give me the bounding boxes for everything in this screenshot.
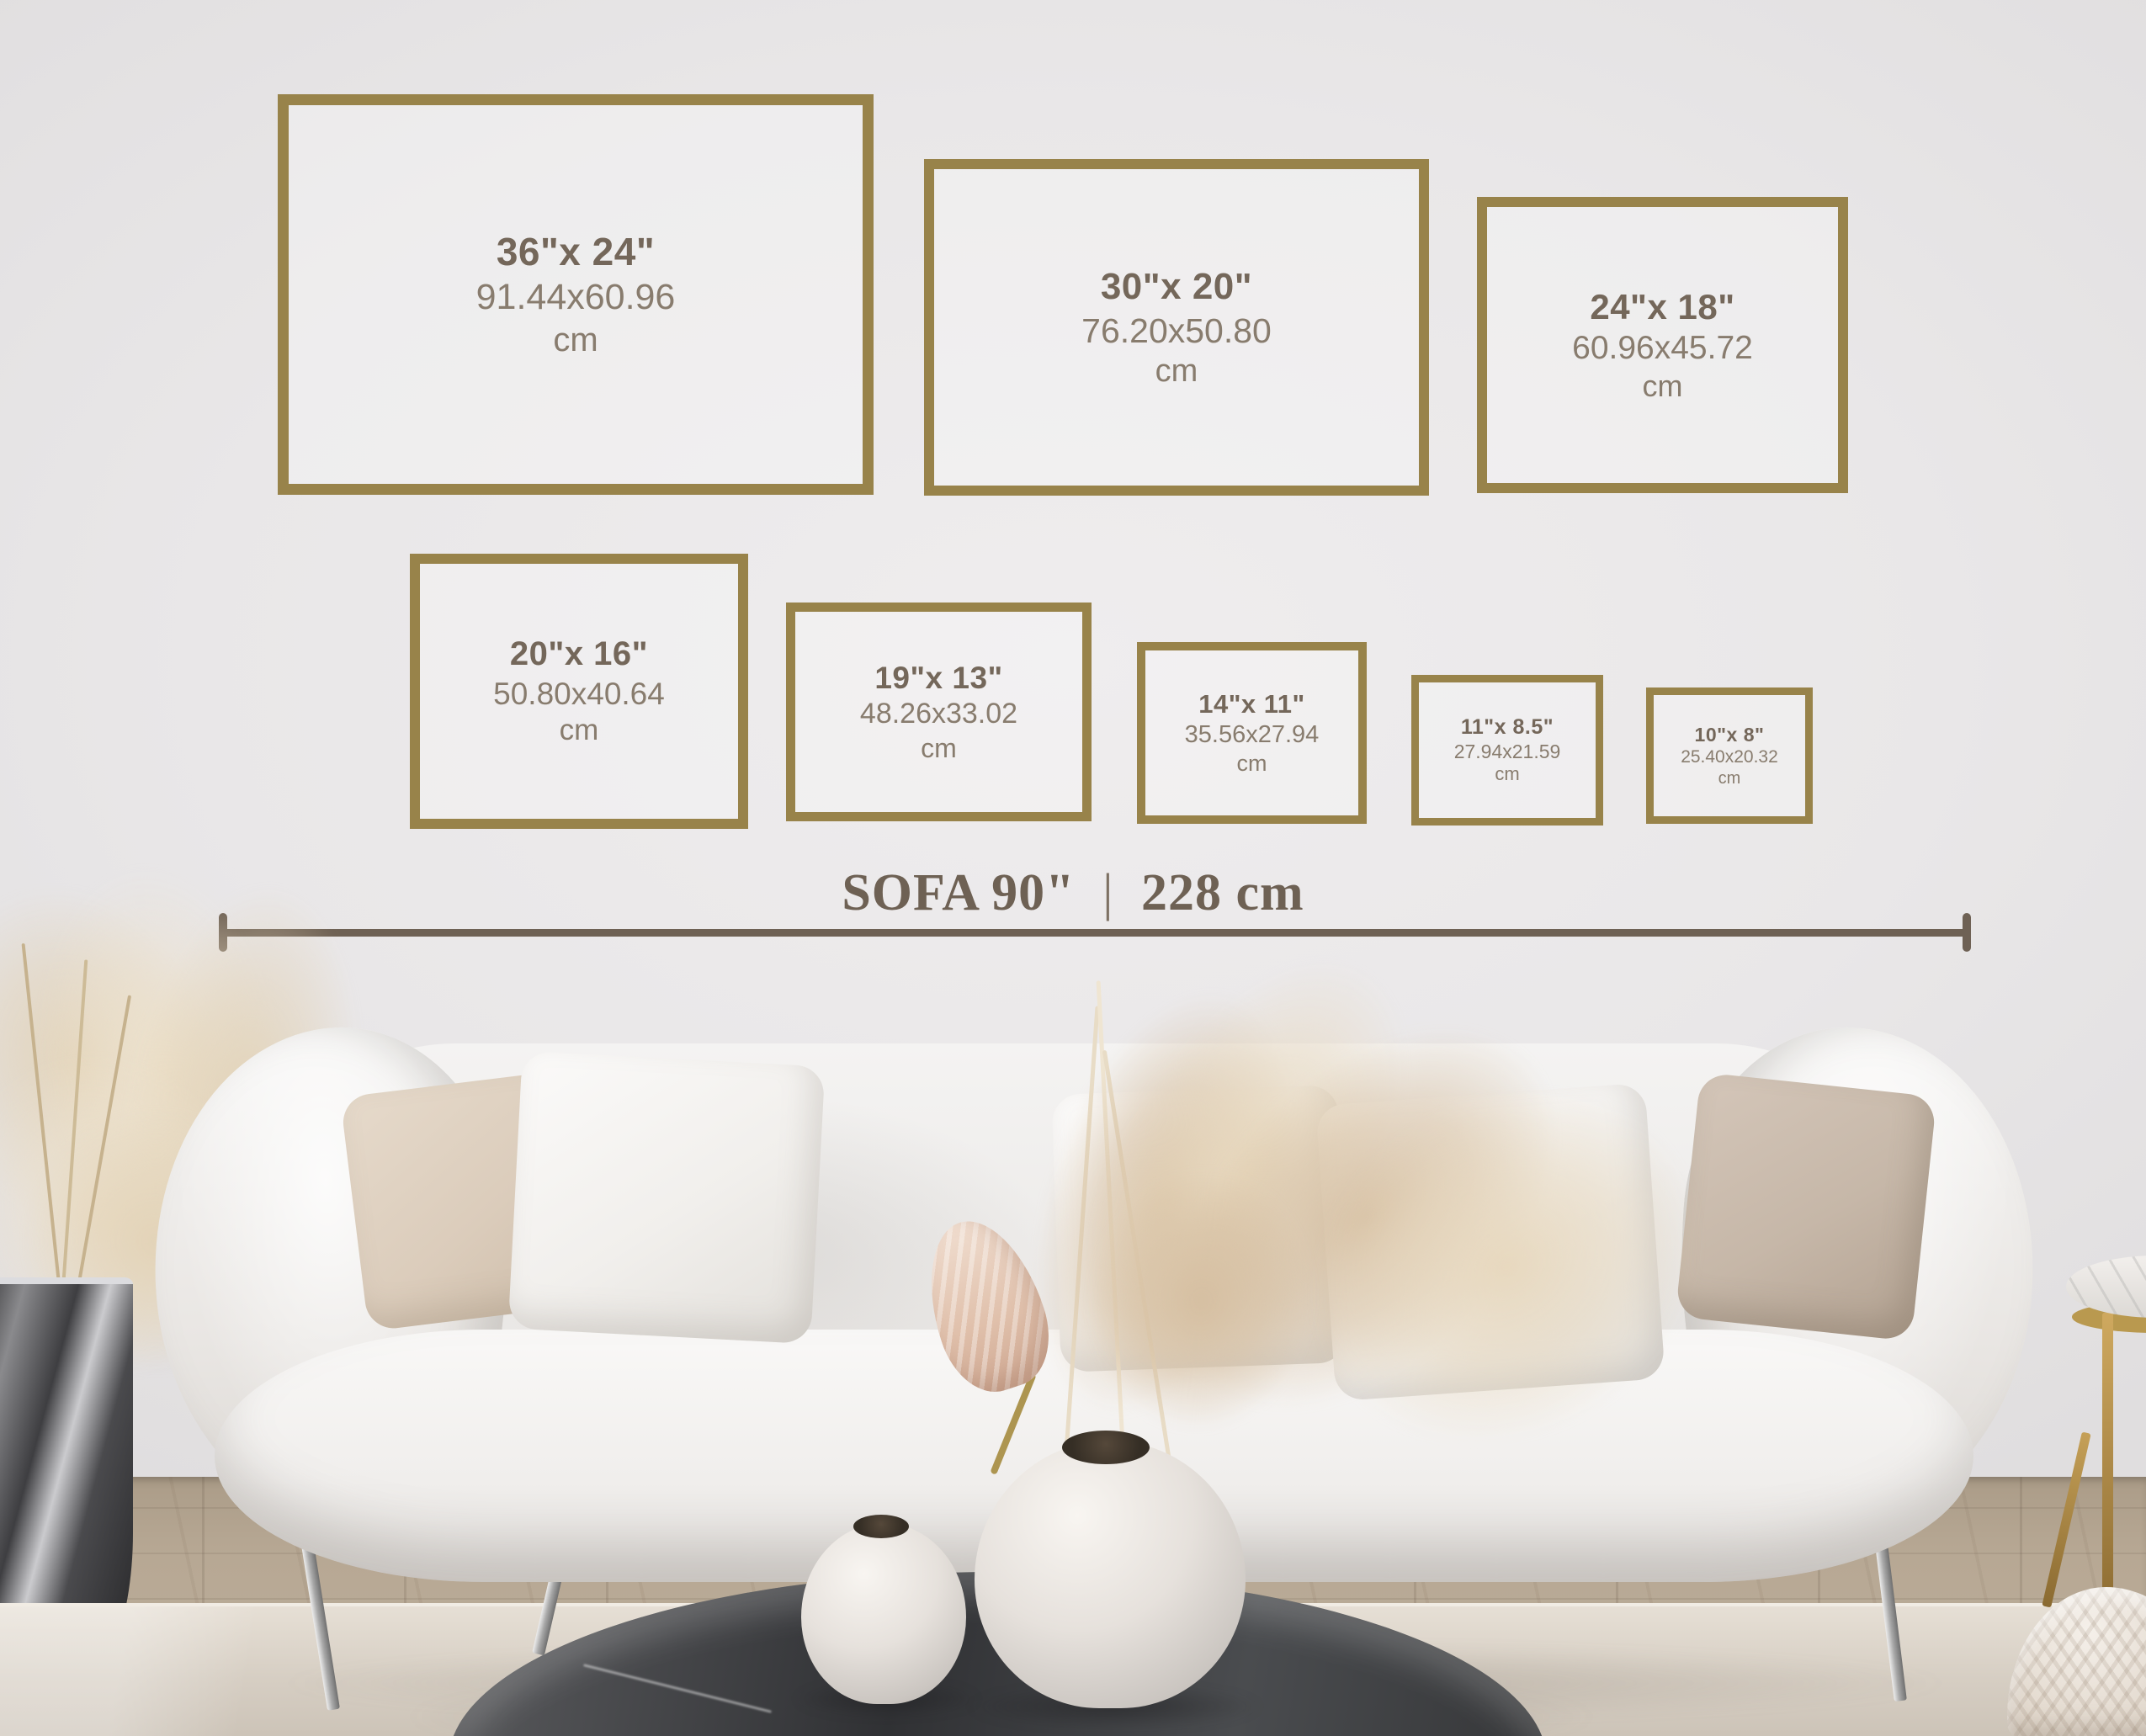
size-inches: 19"x 13" <box>860 659 1017 697</box>
size-cm: 48.26x33.02 <box>860 697 1017 731</box>
size-inches: 14"x 11" <box>1185 688 1320 720</box>
size-inches: 30"x 20" <box>1081 264 1272 310</box>
ball-vase-large <box>975 1441 1246 1708</box>
measure-end-cap-right <box>1963 913 1971 952</box>
size-unit: cm <box>493 713 665 749</box>
vase-opening <box>1062 1431 1150 1464</box>
frame-size-text: 19"x 13" 48.26x33.02 cm <box>860 659 1017 765</box>
size-cm: 27.94x21.59 <box>1454 740 1561 763</box>
frame-30x20: 30"x 20" 76.20x50.80 cm <box>924 159 1429 496</box>
frame-size-text: 11"x 8.5" 27.94x21.59 cm <box>1454 714 1561 786</box>
sofa-measure-label: SOFA 90" | 228 cm <box>652 863 1494 923</box>
size-unit: cm <box>1572 368 1753 405</box>
frame-36x24: 36"x 24" 91.44x60.96 cm <box>278 94 874 495</box>
side-table-top <box>2066 1256 2146 1318</box>
frame-size-text: 24"x 18" 60.96x45.72 cm <box>1572 285 1753 406</box>
size-cm: 76.20x50.80 <box>1081 310 1272 352</box>
size-unit: cm <box>860 732 1017 765</box>
frame-14x11: 14"x 11" 35.56x27.94 cm <box>1137 642 1367 824</box>
frame-size-text: 14"x 11" 35.56x27.94 cm <box>1185 688 1320 778</box>
size-inches: 20"x 16" <box>493 634 665 675</box>
size-cm: 91.44x60.96 <box>476 275 676 319</box>
throw-pillow-white <box>508 1051 826 1344</box>
frame-size-guide-image: SOFA 90" | 228 cm 36"x 24" 91.44x60.96 c… <box>0 0 2146 1736</box>
size-cm: 60.96x45.72 <box>1572 328 1753 369</box>
frame-size-text: 30"x 20" 76.20x50.80 cm <box>1081 264 1272 390</box>
size-cm: 35.56x27.94 <box>1185 720 1320 750</box>
frame-size-text: 36"x 24" 91.44x60.96 cm <box>476 228 676 360</box>
size-inches: 36"x 24" <box>476 228 676 275</box>
frame-size-text: 20"x 16" 50.80x40.64 cm <box>493 634 665 749</box>
size-unit: cm <box>1081 352 1272 390</box>
frame-24x18: 24"x 18" 60.96x45.72 cm <box>1477 197 1848 493</box>
size-unit: cm <box>1454 763 1561 786</box>
ball-vase-small <box>801 1523 966 1704</box>
throw-pillow-taupe <box>1676 1072 1937 1341</box>
sofa-measure-separator: | <box>1089 864 1127 921</box>
size-unit: cm <box>1681 768 1778 788</box>
sofa-measure-inches: SOFA 90" <box>842 864 1075 921</box>
sofa-measure-line <box>220 929 1969 937</box>
size-inches: 11"x 8.5" <box>1454 714 1561 741</box>
size-cm: 25.40x20.32 <box>1681 746 1778 768</box>
frame-19x13: 19"x 13" 48.26x33.02 cm <box>786 603 1092 821</box>
vase-opening <box>853 1515 909 1538</box>
sofa-measure-cm: 228 cm <box>1141 864 1304 921</box>
size-cm: 50.80x40.64 <box>493 675 665 713</box>
frame-11x8-5: 11"x 8.5" 27.94x21.59 cm <box>1411 675 1603 826</box>
frame-10x8: 10"x 8" 25.40x20.32 cm <box>1646 687 1813 824</box>
side-table-leg <box>2102 1313 2113 1606</box>
frame-size-text: 10"x 8" 25.40x20.32 cm <box>1681 723 1778 788</box>
frame-20x16: 20"x 16" 50.80x40.64 cm <box>410 554 748 829</box>
size-unit: cm <box>476 320 676 361</box>
size-inches: 24"x 18" <box>1572 285 1753 328</box>
size-unit: cm <box>1185 750 1320 778</box>
size-inches: 10"x 8" <box>1681 723 1778 746</box>
